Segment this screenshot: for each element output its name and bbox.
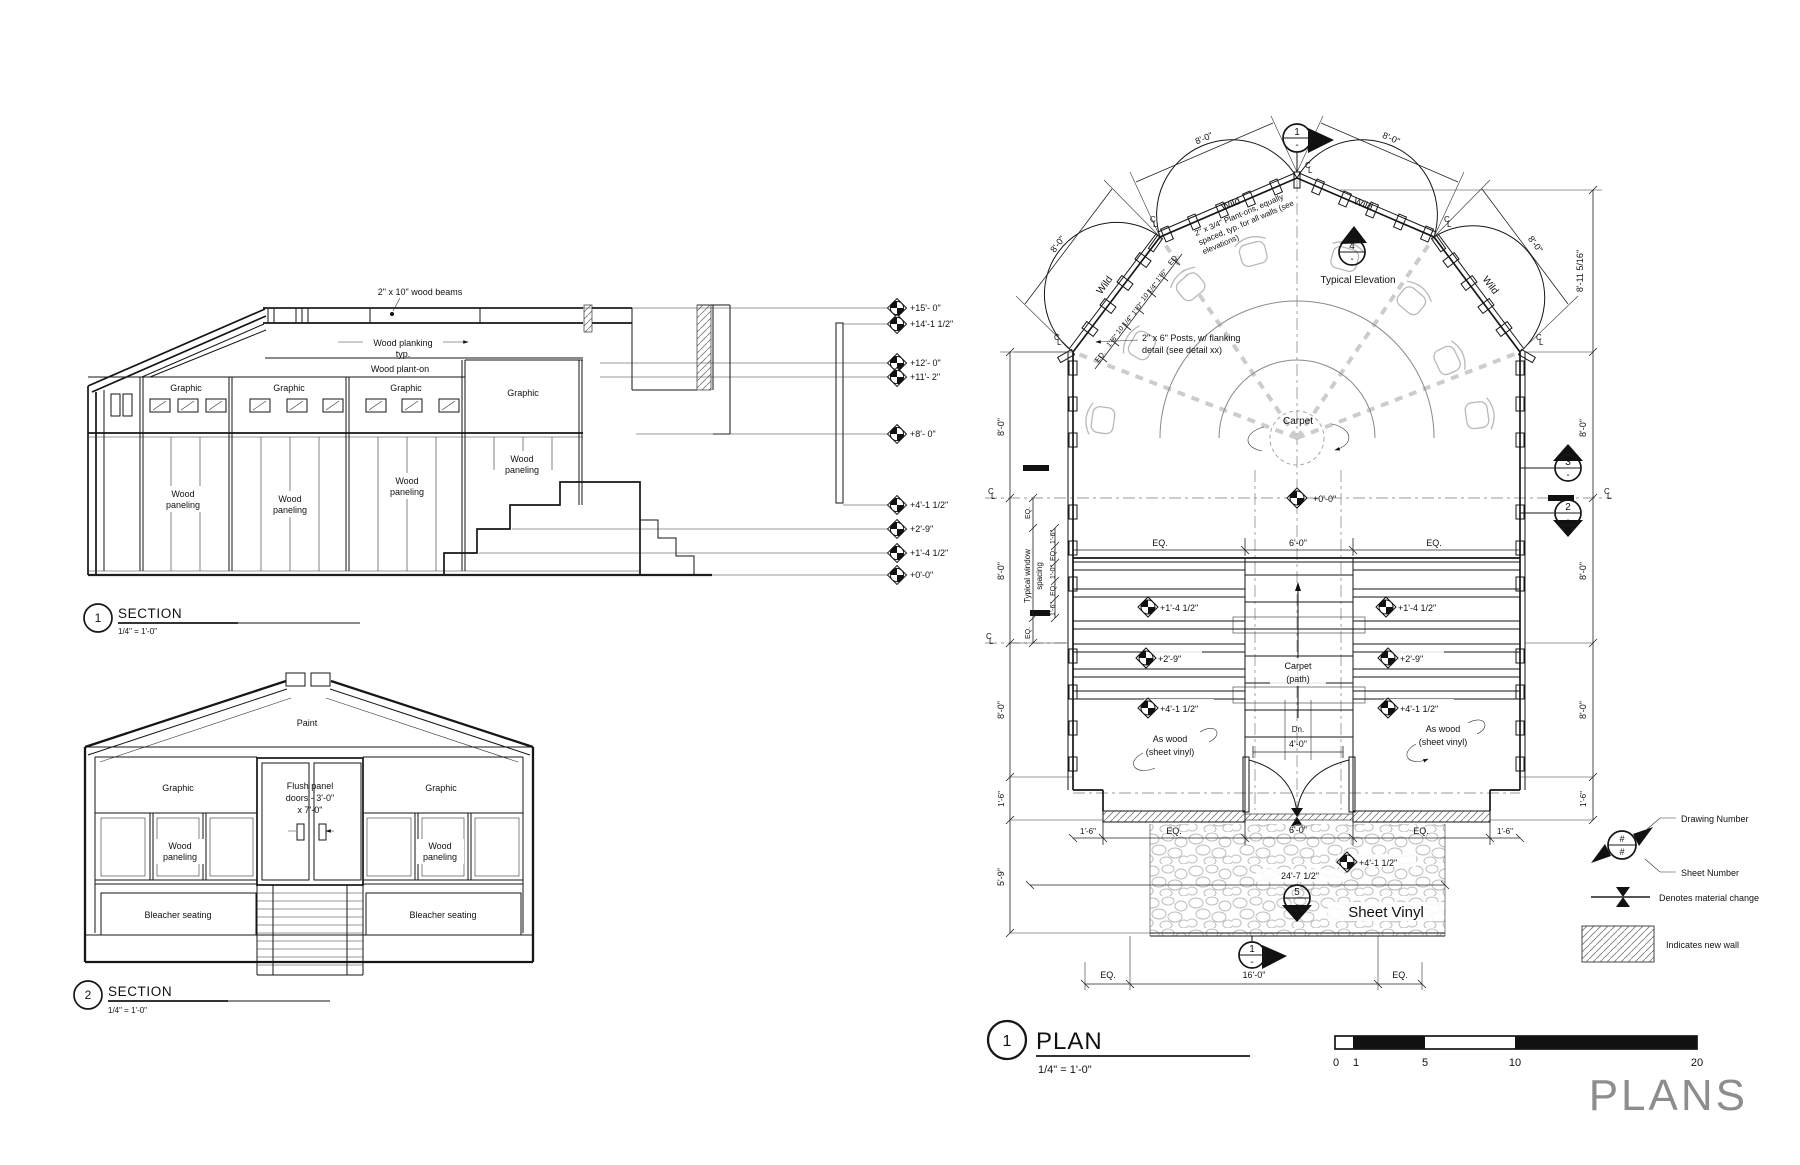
svg-text:8'-11 5/16": 8'-11 5/16" [1575,250,1585,292]
svg-text:3: 3 [1565,457,1571,468]
section2-roof [85,681,533,747]
scale-tick: 5 [1422,1057,1428,1069]
plant-on-note: Wood plant-on [371,364,429,374]
plan-scale: 1/4" = 1'-0" [1038,1064,1092,1076]
section1-elevation-markers: +15'- 0" +14'-1 1/2" +12'- 0" +11'- 2" +… [88,299,953,585]
elevation-label: +14'-1 1/2" [910,319,953,329]
dim-eq: EQ. [1166,826,1182,836]
svg-text:EQ.: EQ. [1025,627,1032,639]
elev-4-vinyl: +4'-1 1/2" [1359,858,1397,868]
graphic-label: Graphic [273,383,305,393]
dim-1-6: 1'-6" [1497,827,1513,836]
window-spacing-note-2: spacing [1035,562,1044,590]
svg-text:EQ.: EQ. [1050,584,1057,596]
svg-text:8'-0": 8'-0" [996,562,1006,580]
section1-left-wall [88,386,96,575]
elevation-label: +2'-9" [910,524,933,534]
section2-scale: 1/4" = 1'-0" [108,1006,147,1015]
planking-note-2: typ. [396,349,411,359]
svg-text:#: # [1619,834,1624,844]
graphic-label: Graphic [507,388,539,398]
drawing-number-symbol: # # [1591,827,1653,863]
graphic-label: Graphic [162,783,194,793]
door-label-3: x 7'-0" [298,805,323,815]
paint-label: Paint [297,718,318,728]
door-leaf [1349,757,1355,812]
svg-text:1: 1 [1294,127,1300,138]
wood-paneling-label: Wood [171,489,194,499]
detail-marker-1-bottom: 1 - [1239,936,1287,969]
sheet-vinyl-label: Sheet Vinyl [1348,904,1424,921]
plan-title: PLAN [1036,1028,1103,1055]
svg-text:L: L [1308,166,1313,175]
bleacher-label: Bleacher seating [409,910,476,920]
scale-tick: 20 [1691,1057,1703,1069]
as-wood-label-2: (sheet vinyl) [1146,747,1195,757]
section1-title: SECTION [118,606,182,621]
svg-text:1'-6": 1'-6" [1050,602,1057,616]
new-wall-symbol [1582,926,1654,962]
svg-text:1'-0": 1'-0" [1131,301,1146,317]
section2-doors [257,758,363,885]
svg-text:L: L [989,637,994,646]
new-wall-label: Indicates new wall [1666,940,1739,950]
dim-1-6: 1'-6" [1080,827,1096,836]
wild-label: Wild [1352,196,1374,214]
svg-text:-: - [1295,900,1298,911]
svg-text:1'-6": 1'-6" [997,791,1006,807]
svg-text:1: 1 [1249,944,1255,955]
door-label: Flush panel [287,781,334,791]
svg-text:EQ.: EQ. [1025,507,1032,519]
section2-number: 2 [85,988,92,1002]
section2-title: SECTION [108,984,172,999]
section1-sloped-roof [88,309,266,392]
svg-text:-: - [1250,957,1253,968]
svg-text:2: 2 [1565,502,1571,513]
wood-paneling-label-2: paneling [273,505,307,515]
door-hardware [297,824,304,840]
svg-text:-: - [1295,140,1298,151]
graphic-label: Graphic [170,383,202,393]
svg-text:1'-6": 1'-6" [1579,791,1588,807]
svg-text:L: L [1057,338,1062,347]
svg-text:L: L [1539,338,1544,347]
elevation-label: +8'- 0" [910,429,936,439]
svg-text:1'-6": 1'-6" [1155,268,1170,284]
svg-text:L: L [1447,220,1452,229]
sheet-title: PLANS [1589,1071,1748,1120]
elevation-label: +15'- 0" [910,303,941,313]
svg-text:L: L [1153,220,1158,229]
dim-24ft: 24'-7 1/2" [1281,871,1319,881]
elev-0: +0'-0" [1313,494,1336,504]
centerline-symbols: CL CL CL CL CL CL CL CL [986,161,1612,646]
elev-4: +4'-1 1/2" [1160,704,1198,714]
elev-1: +1'-4 1/2" [1398,603,1436,613]
elevation-label: +0'-0" [910,570,933,580]
svg-text:5: 5 [1294,887,1300,898]
svg-text:8'-0": 8'-0" [996,418,1006,436]
section1-number: 1 [95,611,102,625]
dim-8ft: 8'-0" [1381,130,1401,146]
elev-2: +2'-9" [1400,654,1423,664]
plan-title-block: 1 PLAN 1/4" = 1'-0" [988,1021,1250,1076]
planking-note: Wood planking [373,338,432,348]
wood-paneling-label: Wood [428,841,451,851]
elev-1: +1'-4 1/2" [1160,603,1198,613]
legend: # # Drawing Number Sheet Number Denotes … [1582,814,1759,962]
section1-windows [150,399,459,412]
wood-paneling-label-2: paneling [166,500,200,510]
drawing-sheet: 2" x 10" wood beams Wood planking typ. W… [0,0,1800,1165]
carpet-path-label-2: (path) [1286,674,1310,684]
dim-6ft: 6'-0" [1289,538,1307,548]
elev-4: +4'-1 1/2" [1400,704,1438,714]
detail-marker-2: 2 - [1553,500,1583,537]
sheet-canvas: 2" x 10" wood beams Wood planking typ. W… [0,0,1800,1165]
dim-eq: EQ. [1392,970,1408,980]
wood-paneling-label: Wood [168,841,191,851]
dn-label: Dn. [1292,725,1304,734]
as-wood-label: As wood [1153,734,1188,744]
svg-text:4: 4 [1349,241,1355,252]
sheet-number-label: Sheet Number [1681,868,1739,878]
graphic-label: Graphic [390,383,422,393]
dim-4ft: 4'-0" [1289,739,1307,749]
svg-text:L: L [991,492,996,501]
section1-title-block: 1 SECTION 1/4" = 1'-0" [84,604,360,636]
graphic-label: Graphic [425,783,457,793]
svg-text:-: - [1566,515,1569,526]
svg-text:-: - [1350,254,1353,265]
svg-text:10 1/4": 10 1/4" [1140,281,1160,303]
elevation-label: +11'- 2" [910,372,940,382]
wild-arcs [1000,116,1578,352]
dim-eq: EQ. [1100,970,1116,980]
material-change-label: Denotes material change [1659,893,1759,903]
svg-text:8'-0": 8'-0" [1578,562,1588,580]
dim-6ft: 6'-0" [1289,825,1307,835]
posts-note-2: detail (see detail xx) [1142,345,1222,355]
svg-text:1'-0": 1'-0" [1050,565,1057,579]
elevation-label: +1'-4 1/2" [910,548,948,558]
dim-eq: EQ. [1152,538,1168,548]
wood-paneling-label-2: paneling [423,852,457,862]
svg-text:EQ.: EQ. [1167,253,1180,267]
scale-bar: 0 1 5 10 20 [1333,1036,1703,1069]
dim-8ft: 8'-0" [1194,130,1214,146]
door-swing [1249,760,1349,813]
section1-bleacher-steps [444,482,640,575]
section2-title-block: 2 SECTION 1/4" = 1'-0" [74,981,330,1015]
bleacher-label: Bleacher seating [144,910,211,920]
posts-note: 2" x 6" Posts, w/ flanking [1142,333,1240,343]
elevation-label: +12'- 0" [910,358,941,368]
dim-16ft: 16'-0" [1243,970,1266,980]
section1-beam-band [263,308,632,323]
as-wood-label: As wood [1426,724,1461,734]
dim-eq: EQ. [1413,826,1429,836]
wood-paneling-label: Wood [395,476,418,486]
svg-text:8'-0": 8'-0" [996,701,1006,719]
wood-paneling-label-2: paneling [505,465,539,475]
as-wood-label-2: (sheet vinyl) [1419,737,1468,747]
carpet-path-label: Carpet [1284,661,1312,671]
window-spacing-note: Typical window [1023,549,1032,603]
svg-text:-: - [1566,470,1569,481]
door-leaf [1243,757,1249,812]
beams-note: 2" x 10" wood beams [378,287,463,297]
wood-paneling-label-2: paneling [390,487,424,497]
door-label-2: doors - 3'-0" [286,793,334,803]
svg-text:8'-0": 8'-0" [1578,701,1588,719]
plan-entry [1103,757,1490,826]
svg-text:EQ.: EQ. [1094,350,1107,364]
wood-paneling-label: Wood [278,494,301,504]
plan-number: 1 [1003,1033,1012,1050]
dim-eq: EQ. [1426,538,1442,548]
svg-text:8'-0": 8'-0" [1578,419,1588,437]
floor-plan: Wild Wild Wild Wild 8'-0" 8'-0" 8'-0" 8'… [985,116,1612,1076]
svg-text:#: # [1619,847,1624,857]
wild-label: Wild [1095,274,1115,296]
svg-text:5'-9": 5'-9" [996,868,1006,886]
elev-2: +2'-9" [1158,654,1181,664]
detail-marker-3: 3 - [1553,444,1583,481]
svg-text:L: L [1607,492,1612,501]
door-hardware [319,824,326,840]
scale-tick: 10 [1509,1057,1521,1069]
carpet-label: Carpet [1283,416,1313,427]
scale-tick: 1 [1353,1057,1359,1069]
section1-scale: 1/4" = 1'-0" [118,627,157,636]
section-1-drawing: 2" x 10" wood beams Wood planking typ. W… [84,287,953,636]
typical-elevation-label: Typical Elevation [1320,275,1395,286]
svg-text:1'-6": 1'-6" [1050,530,1057,544]
scale-tick: 0 [1333,1057,1339,1069]
wood-paneling-label-2: paneling [163,852,197,862]
drawing-number-label: Drawing Number [1681,814,1749,824]
svg-text:EQ.: EQ. [1050,549,1057,561]
section1-right-post [836,323,843,503]
elevation-label: +4'-1 1/2" [910,500,948,510]
wood-paneling-label: Wood [510,454,533,464]
section-2-drawing: Paint Graphic Graphic Flush panel doors … [74,673,533,1015]
